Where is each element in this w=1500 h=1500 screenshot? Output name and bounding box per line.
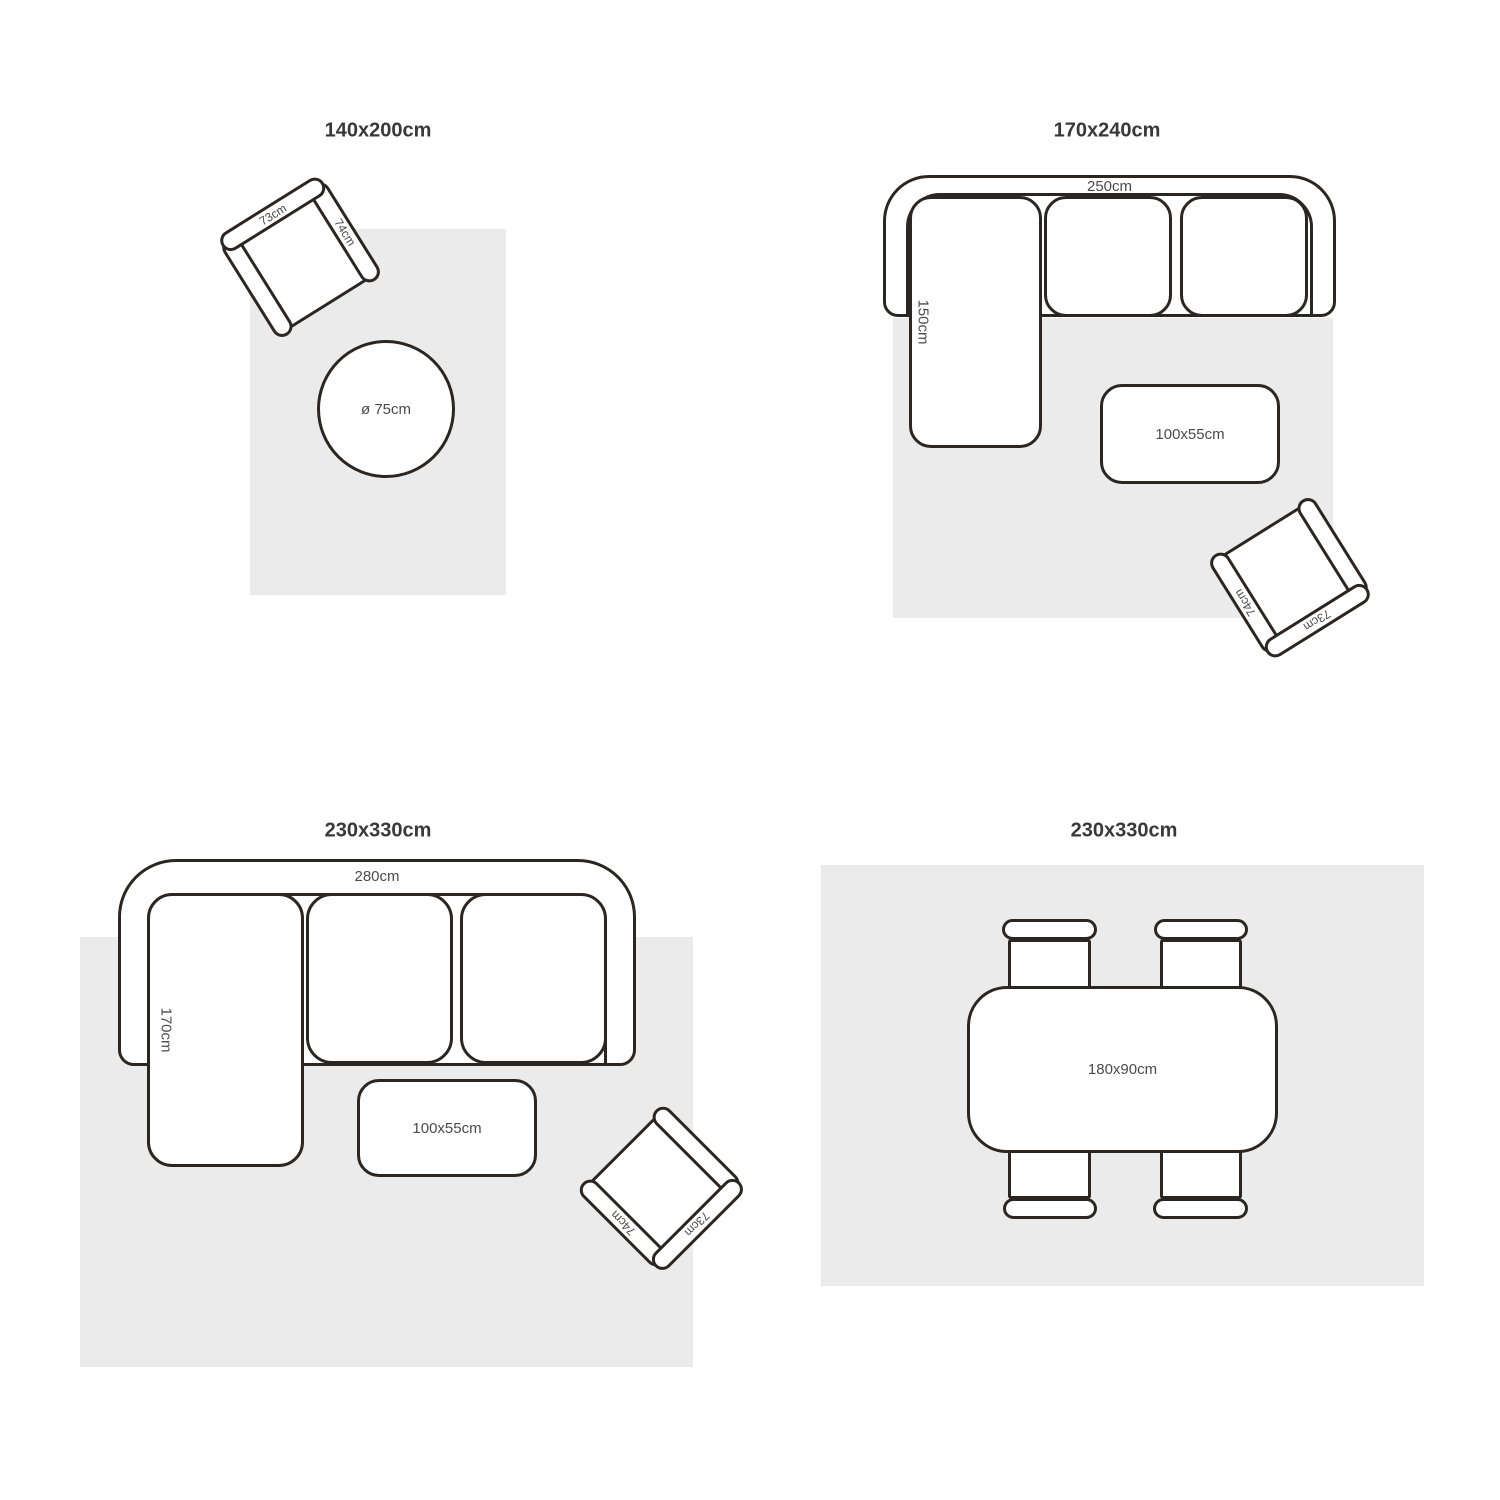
bl-sofa-chaise-depth-label: 170cm: [158, 1007, 175, 1052]
bl-title: 230x330cm: [325, 820, 432, 843]
br-dining-chair-back: [1154, 919, 1248, 940]
tr-coffee-table-size-label: 100x55cm: [1155, 426, 1224, 443]
tr-sofa-seat-cushion: [1180, 196, 1308, 317]
br-dining-chair-seat: [1160, 1147, 1242, 1199]
br-dining-chair-seat: [1160, 939, 1242, 992]
tl-title: 140x200cm: [325, 120, 432, 143]
br-dining-chair-back: [1002, 919, 1097, 940]
tl-round-side-table: ø 75cm: [317, 340, 455, 478]
bl-coffee-table: 100x55cm: [357, 1079, 537, 1177]
bl-sofa-seat-cushion: [306, 893, 453, 1064]
tl-round-table-diameter-label: ø 75cm: [361, 401, 411, 418]
tr-sofa-chaise-depth-label: 150cm: [915, 299, 932, 344]
bl-coffee-table-size-label: 100x55cm: [412, 1120, 481, 1137]
rug-size-guide-diagram: 140x200cm 170x240cm 230x330cm 230x330cm …: [0, 0, 1500, 1500]
tr-sofa-width-label: 250cm: [883, 178, 1336, 195]
br-dining-table: 180x90cm: [967, 986, 1278, 1153]
bl-sofa-seat-cushion: [460, 893, 607, 1064]
br-dining-chair-back: [1153, 1198, 1248, 1219]
br-dining-chair-seat: [1008, 939, 1091, 992]
tr-title: 170x240cm: [1054, 120, 1161, 143]
br-title: 230x330cm: [1071, 820, 1178, 843]
br-dining-chair-back: [1003, 1198, 1097, 1219]
br-dining-table-size-label: 180x90cm: [1088, 1061, 1157, 1078]
tr-coffee-table: 100x55cm: [1100, 384, 1280, 484]
tr-sofa-seat-cushion: [1044, 196, 1172, 317]
br-dining-chair-seat: [1008, 1147, 1091, 1199]
bl-sofa-width-label: 280cm: [118, 868, 636, 885]
